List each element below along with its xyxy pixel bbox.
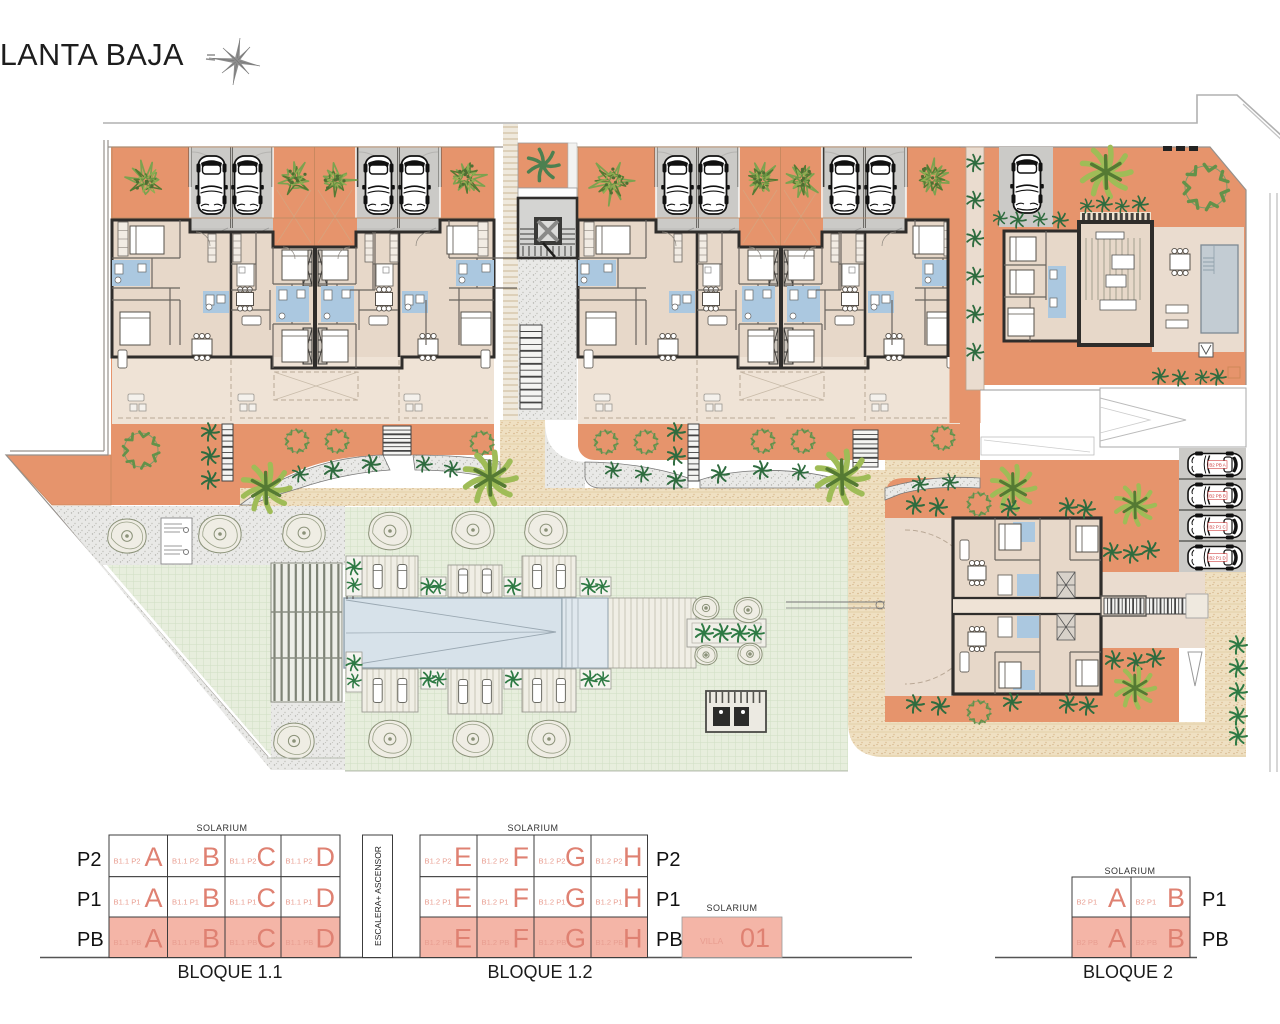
svg-text:B1.2 PB: B1.2 PB [482,938,510,947]
svg-text:B1.1 P1: B1.1 P1 [286,897,313,906]
svg-text:B2 P1: B2 P1 [1136,898,1157,907]
svg-text:B1.1 PB: B1.1 PB [230,938,258,947]
svg-text:B2 P1 D: B2 P1 D [1209,556,1225,561]
svg-text:BLOQUE 2: BLOQUE 2 [1083,962,1173,982]
svg-text:C: C [257,883,277,913]
svg-text:G: G [565,842,586,872]
svg-text:B2 PB: B2 PB [1136,938,1158,947]
svg-text:A: A [144,842,162,872]
svg-text:B: B [1167,923,1185,953]
svg-text:A: A [144,923,162,953]
svg-text:H: H [623,842,643,872]
svg-text:B: B [202,842,220,872]
svg-text:P1: P1 [656,889,680,911]
svg-text:D: D [316,883,336,913]
svg-text:H: H [623,923,643,953]
svg-text:F: F [513,883,530,913]
svg-text:A: A [1108,883,1126,913]
svg-text:B1.1 P1: B1.1 P1 [114,897,141,906]
svg-text:B1.1 P2: B1.1 P2 [286,856,313,865]
svg-text:B1.1 P2: B1.1 P2 [172,856,199,865]
svg-text:P1: P1 [77,889,101,911]
svg-text:B: B [202,923,220,953]
svg-text:PB: PB [1202,929,1229,951]
svg-text:P2: P2 [77,849,101,871]
svg-text:C: C [257,923,277,953]
svg-text:B2 P1 C: B2 P1 C [1209,525,1225,530]
svg-text:B1.1 P1: B1.1 P1 [230,897,257,906]
svg-text:B1.1 P2: B1.1 P2 [114,856,141,865]
svg-text:B2 P1: B2 P1 [1077,898,1098,907]
svg-text:B2 PB A: B2 PB A [1209,463,1225,468]
svg-text:SOLARIUM: SOLARIUM [706,903,757,913]
svg-text:BLOQUE 1.2: BLOQUE 1.2 [487,962,592,982]
svg-text:B1.1 PB: B1.1 PB [286,938,314,947]
svg-text:PLANTA BAJA: PLANTA BAJA [0,38,184,72]
svg-text:B1.2 PB: B1.2 PB [425,938,453,947]
svg-text:B1.2 P2: B1.2 P2 [425,856,452,865]
svg-text:A: A [144,883,162,913]
svg-text:D: D [316,842,336,872]
svg-text:B1.1 PB: B1.1 PB [114,938,142,947]
svg-text:B: B [1167,883,1185,913]
svg-text:C: C [257,842,277,872]
svg-text:B1.1 P1: B1.1 P1 [172,897,199,906]
svg-text:D: D [316,923,336,953]
svg-text:B: B [202,883,220,913]
svg-text:B2 PB: B2 PB [1077,938,1099,947]
svg-text:SOLARIUM: SOLARIUM [507,823,558,833]
svg-text:F: F [513,923,530,953]
svg-text:G: G [565,883,586,913]
svg-text:B1.2 P1: B1.2 P1 [596,897,623,906]
svg-text:BLOQUE 1.1: BLOQUE 1.1 [177,962,282,982]
svg-text:B1.2 P1: B1.2 P1 [425,897,452,906]
svg-text:B1.1 P2: B1.1 P2 [230,856,257,865]
svg-text:B1.2 PB: B1.2 PB [596,938,624,947]
svg-text:ESCALERA+ ASCENSOR: ESCALERA+ ASCENSOR [373,846,383,946]
svg-text:VILLA: VILLA [700,936,723,946]
svg-text:SOLARIUM: SOLARIUM [1104,866,1155,876]
svg-text:E: E [454,842,472,872]
svg-text:P1: P1 [1202,889,1226,911]
svg-text:B1.2 P2: B1.2 P2 [596,856,623,865]
svg-text:PB: PB [77,929,104,951]
svg-text:B1.2 P2: B1.2 P2 [482,856,509,865]
svg-text:F: F [513,842,530,872]
svg-text:B1.1 PB: B1.1 PB [172,938,200,947]
svg-text:E: E [454,923,472,953]
svg-text:B2 PB B: B2 PB B [1209,494,1226,499]
svg-text:B1.2 PB: B1.2 PB [539,938,567,947]
svg-text:B1.2 P1: B1.2 P1 [539,897,566,906]
svg-text:SOLARIUM: SOLARIUM [196,823,247,833]
svg-text:E: E [454,883,472,913]
svg-text:G: G [565,923,586,953]
svg-text:01: 01 [740,923,770,953]
svg-text:PB: PB [656,929,683,951]
svg-text:B1.2 P2: B1.2 P2 [539,856,566,865]
svg-text:A: A [1108,923,1126,953]
svg-text:B1.2 P1: B1.2 P1 [482,897,509,906]
svg-text:P2: P2 [656,849,680,871]
svg-text:H: H [623,883,643,913]
